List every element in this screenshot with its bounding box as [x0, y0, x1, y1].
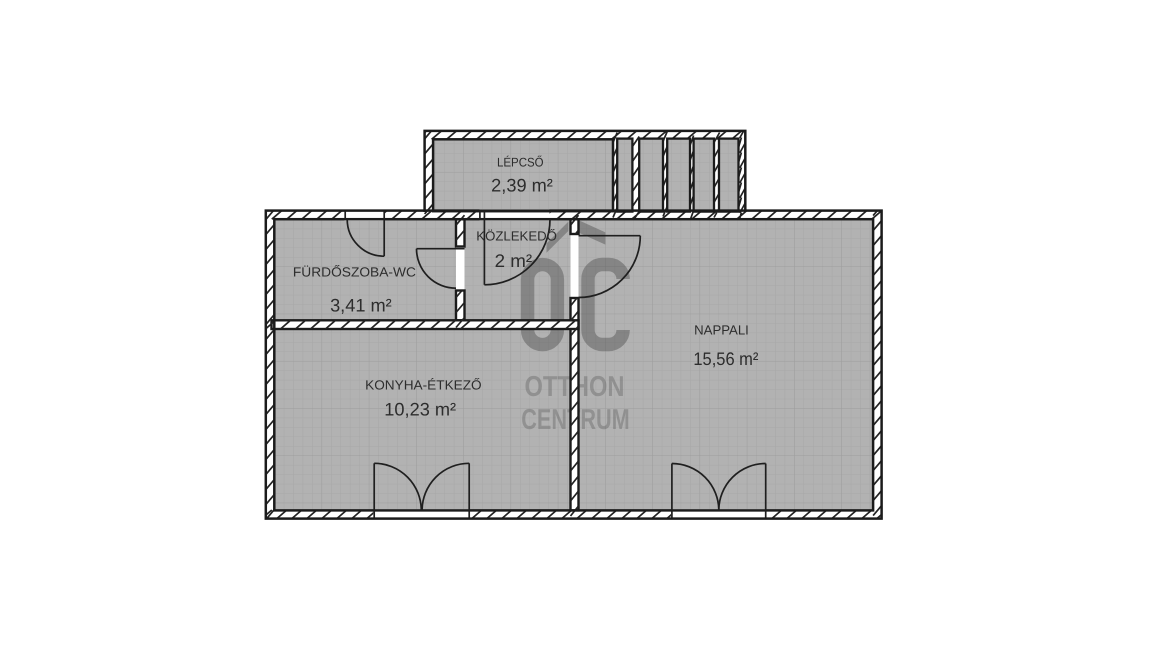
svg-text:NAPPALI: NAPPALI	[694, 323, 749, 338]
svg-text:2 m²: 2 m²	[495, 251, 533, 271]
svg-text:KÖZLEKEDŐ: KÖZLEKEDŐ	[476, 228, 557, 243]
svg-text:LÉPCSŐ: LÉPCSŐ	[497, 156, 544, 170]
svg-text:15,56 m²: 15,56 m²	[693, 349, 758, 369]
svg-text:2,39 m²: 2,39 m²	[491, 175, 553, 195]
svg-text:FÜRDŐSZOBA-WC: FÜRDŐSZOBA-WC	[293, 265, 416, 280]
svg-text:3,41 m²: 3,41 m²	[330, 296, 392, 316]
svg-text:KONYHA-ÉTKEZŐ: KONYHA-ÉTKEZŐ	[365, 378, 482, 393]
svg-text:10,23 m²: 10,23 m²	[384, 400, 456, 420]
